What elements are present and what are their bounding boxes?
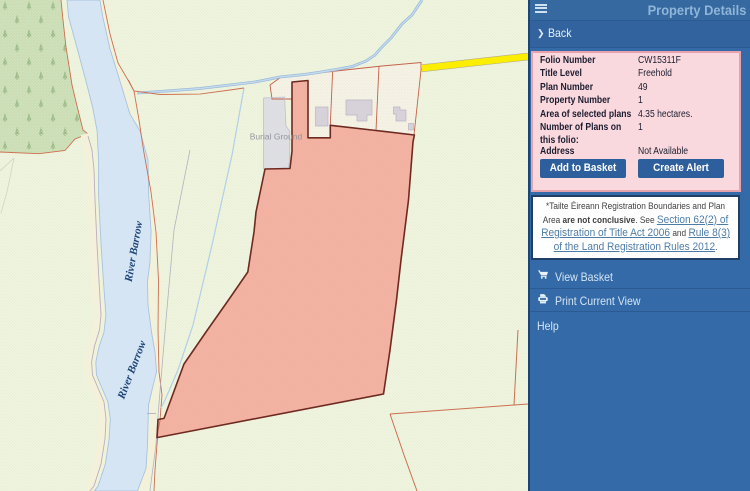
svg-text:Burial Ground: Burial Ground: [250, 132, 303, 142]
